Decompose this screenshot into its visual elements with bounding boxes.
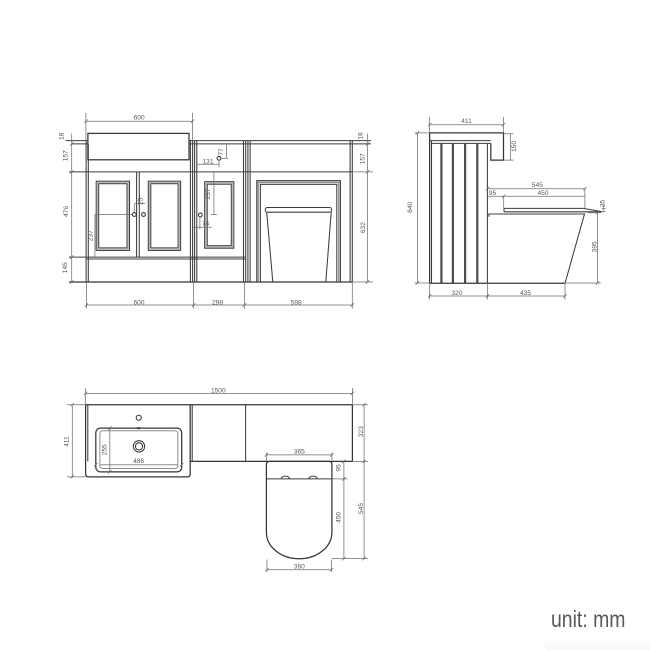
svg-text:131: 131 xyxy=(202,159,213,166)
svg-text:25: 25 xyxy=(599,200,606,208)
svg-text:323: 323 xyxy=(358,426,365,437)
svg-text:545: 545 xyxy=(358,503,365,514)
svg-text:360: 360 xyxy=(294,563,305,570)
svg-text:320: 320 xyxy=(451,290,462,297)
svg-text:237: 237 xyxy=(205,188,212,199)
svg-text:395: 395 xyxy=(591,241,598,252)
svg-text:95: 95 xyxy=(336,464,343,472)
svg-text:486: 486 xyxy=(133,458,144,465)
svg-text:545: 545 xyxy=(532,182,543,189)
svg-text:18: 18 xyxy=(358,132,365,140)
svg-text:411: 411 xyxy=(461,118,472,125)
svg-text:476: 476 xyxy=(63,206,70,217)
svg-text:598: 598 xyxy=(291,299,302,306)
svg-text:95: 95 xyxy=(489,190,497,197)
svg-text:632: 632 xyxy=(360,222,367,233)
svg-text:157: 157 xyxy=(360,153,367,164)
svg-text:435: 435 xyxy=(520,290,531,297)
svg-text:25: 25 xyxy=(137,197,144,205)
svg-text:840: 840 xyxy=(407,201,414,212)
svg-text:18: 18 xyxy=(59,132,66,140)
svg-text:450: 450 xyxy=(537,190,548,197)
svg-text:237: 237 xyxy=(87,230,94,241)
svg-text:unit: mm: unit: mm xyxy=(551,606,626,632)
svg-text:255: 255 xyxy=(102,444,109,455)
svg-text:157: 157 xyxy=(62,150,69,161)
svg-text:365: 365 xyxy=(294,448,305,455)
svg-text:600: 600 xyxy=(134,115,145,122)
svg-text:600: 600 xyxy=(133,299,144,306)
svg-text:298: 298 xyxy=(212,299,223,306)
svg-text:77: 77 xyxy=(218,148,225,156)
svg-text:450: 450 xyxy=(336,512,343,523)
svg-text:150: 150 xyxy=(511,141,518,152)
svg-text:1500: 1500 xyxy=(211,388,226,395)
svg-text:145: 145 xyxy=(62,262,69,273)
svg-text:74: 74 xyxy=(202,221,210,228)
svg-text:411: 411 xyxy=(64,436,71,447)
